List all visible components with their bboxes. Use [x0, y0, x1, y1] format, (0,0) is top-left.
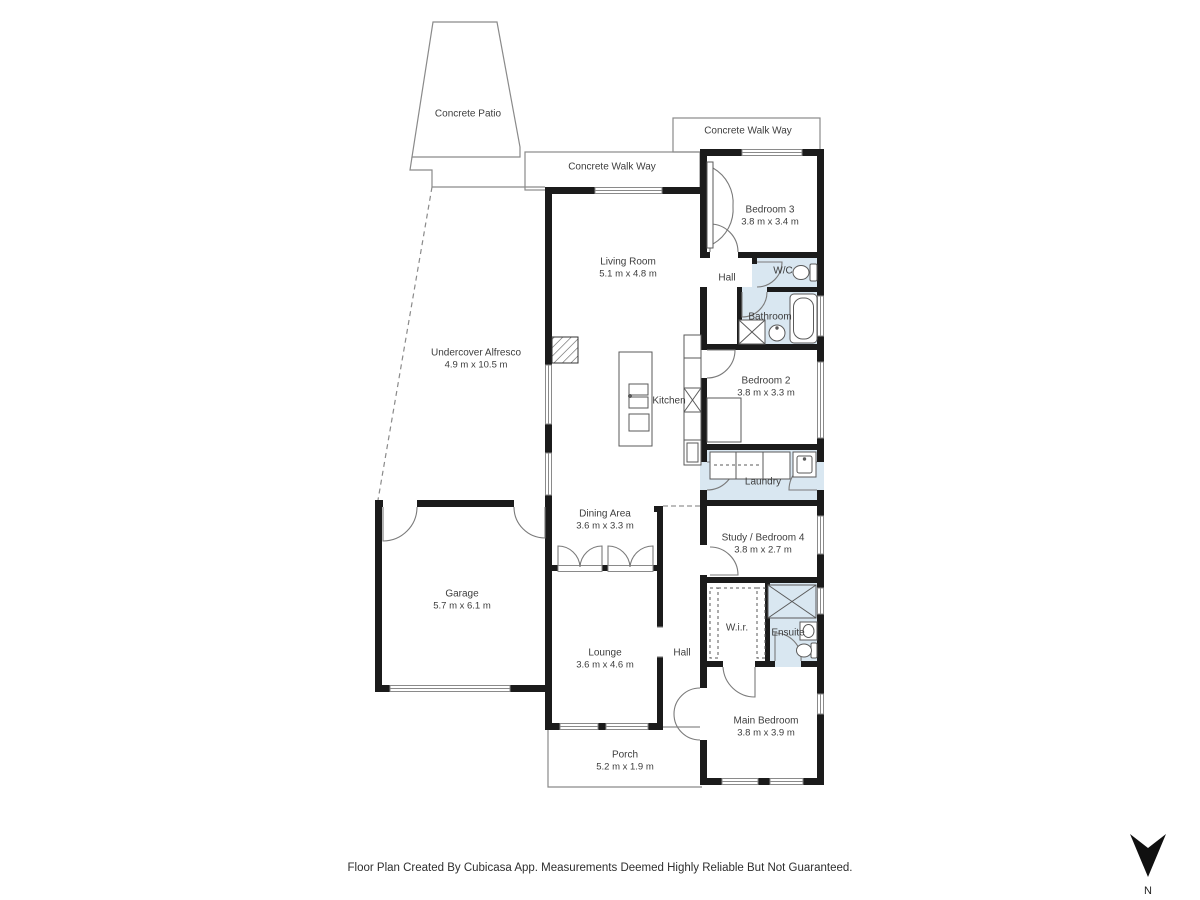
- sink: [769, 325, 785, 341]
- french-door-2: [580, 546, 602, 567]
- window: [742, 150, 802, 156]
- wir-shelves: [710, 588, 765, 658]
- shower: [768, 585, 816, 618]
- outdoor-outlines: [378, 22, 820, 787]
- window: [818, 588, 824, 614]
- cooktop: [629, 414, 649, 431]
- fireplace: [552, 337, 578, 363]
- window: [818, 694, 824, 714]
- window: [546, 453, 552, 495]
- study-door: [710, 547, 738, 575]
- window: [606, 724, 648, 730]
- toilet: [793, 264, 817, 281]
- window: [818, 296, 824, 336]
- french-door-3: [608, 546, 630, 567]
- sink: [800, 622, 817, 640]
- bedroom3-door: [710, 224, 738, 252]
- laundry-sink: [793, 452, 816, 477]
- bedroom2-door: [707, 350, 735, 378]
- shower: [739, 320, 765, 344]
- alfresco-boundary-dashed: [378, 187, 432, 500]
- concrete-walkway-mid-outline: [525, 152, 700, 190]
- garage-door-left: [383, 507, 417, 541]
- toilet: [797, 643, 818, 658]
- window: [546, 365, 552, 424]
- compass-n-label: N: [1122, 885, 1174, 897]
- kitchen-counter: [684, 335, 701, 465]
- north-arrow-icon: [1122, 828, 1174, 878]
- hall-double-door: [674, 688, 700, 740]
- french-door-4: [630, 546, 653, 567]
- window: [722, 779, 758, 785]
- floor-plan-page: Concrete Patio Concrete Walk Way Concret…: [0, 0, 1200, 900]
- kitchen-island: [619, 352, 652, 446]
- compass: N: [1122, 828, 1174, 892]
- bathtub: [790, 294, 817, 343]
- bedroom2-closet: [707, 398, 741, 442]
- french-door-1: [558, 546, 580, 567]
- window: [595, 188, 662, 194]
- disclaimer-text: Floor Plan Created By Cubicasa App. Meas…: [0, 862, 1200, 874]
- garage-door-right: [514, 507, 545, 538]
- window: [818, 362, 824, 438]
- porch-outline: [548, 730, 702, 787]
- window: [560, 724, 598, 730]
- concrete-patio-outline: [412, 22, 520, 157]
- laundry-bench: [710, 452, 790, 479]
- window: [818, 516, 824, 554]
- wir-door: [723, 667, 755, 697]
- window: [770, 779, 803, 785]
- concrete-patio-notch: [410, 157, 432, 187]
- floor-plan-drawing: [0, 0, 1200, 900]
- bedroom3-wardrobe: [707, 162, 713, 248]
- concrete-walkway-top-outline: [673, 118, 820, 152]
- garage-door: [390, 686, 510, 692]
